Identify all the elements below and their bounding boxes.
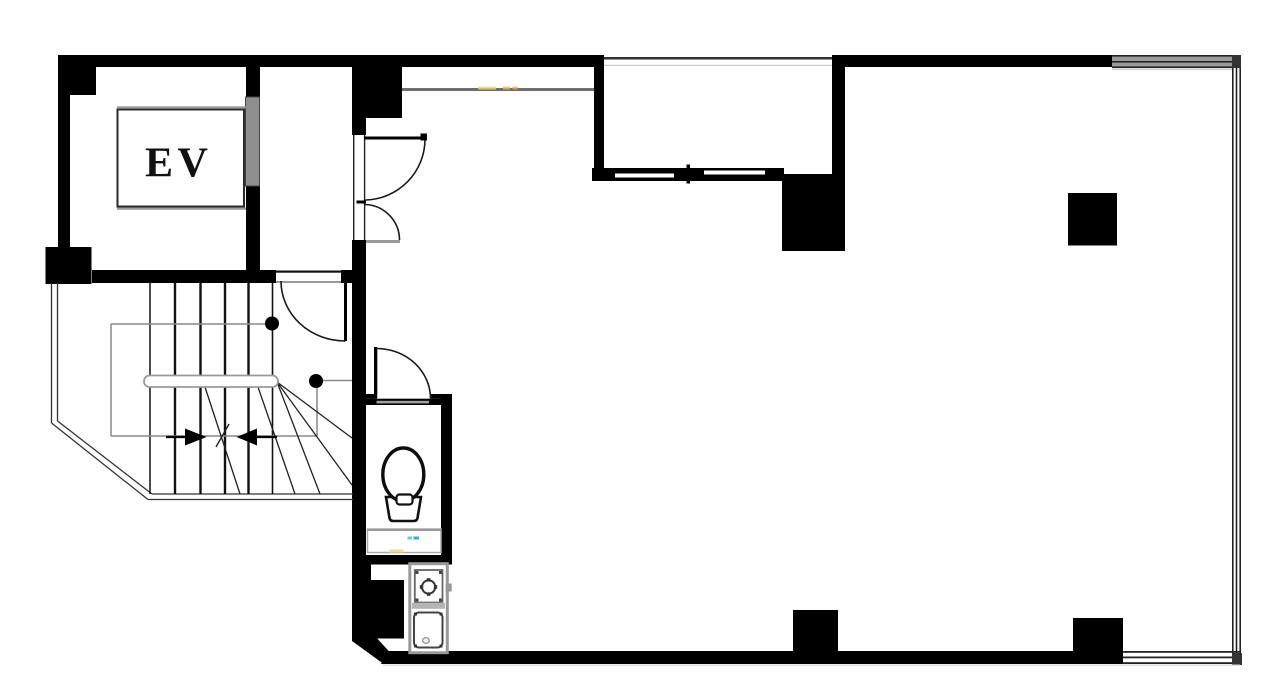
- svg-text:EV: EV: [145, 141, 212, 187]
